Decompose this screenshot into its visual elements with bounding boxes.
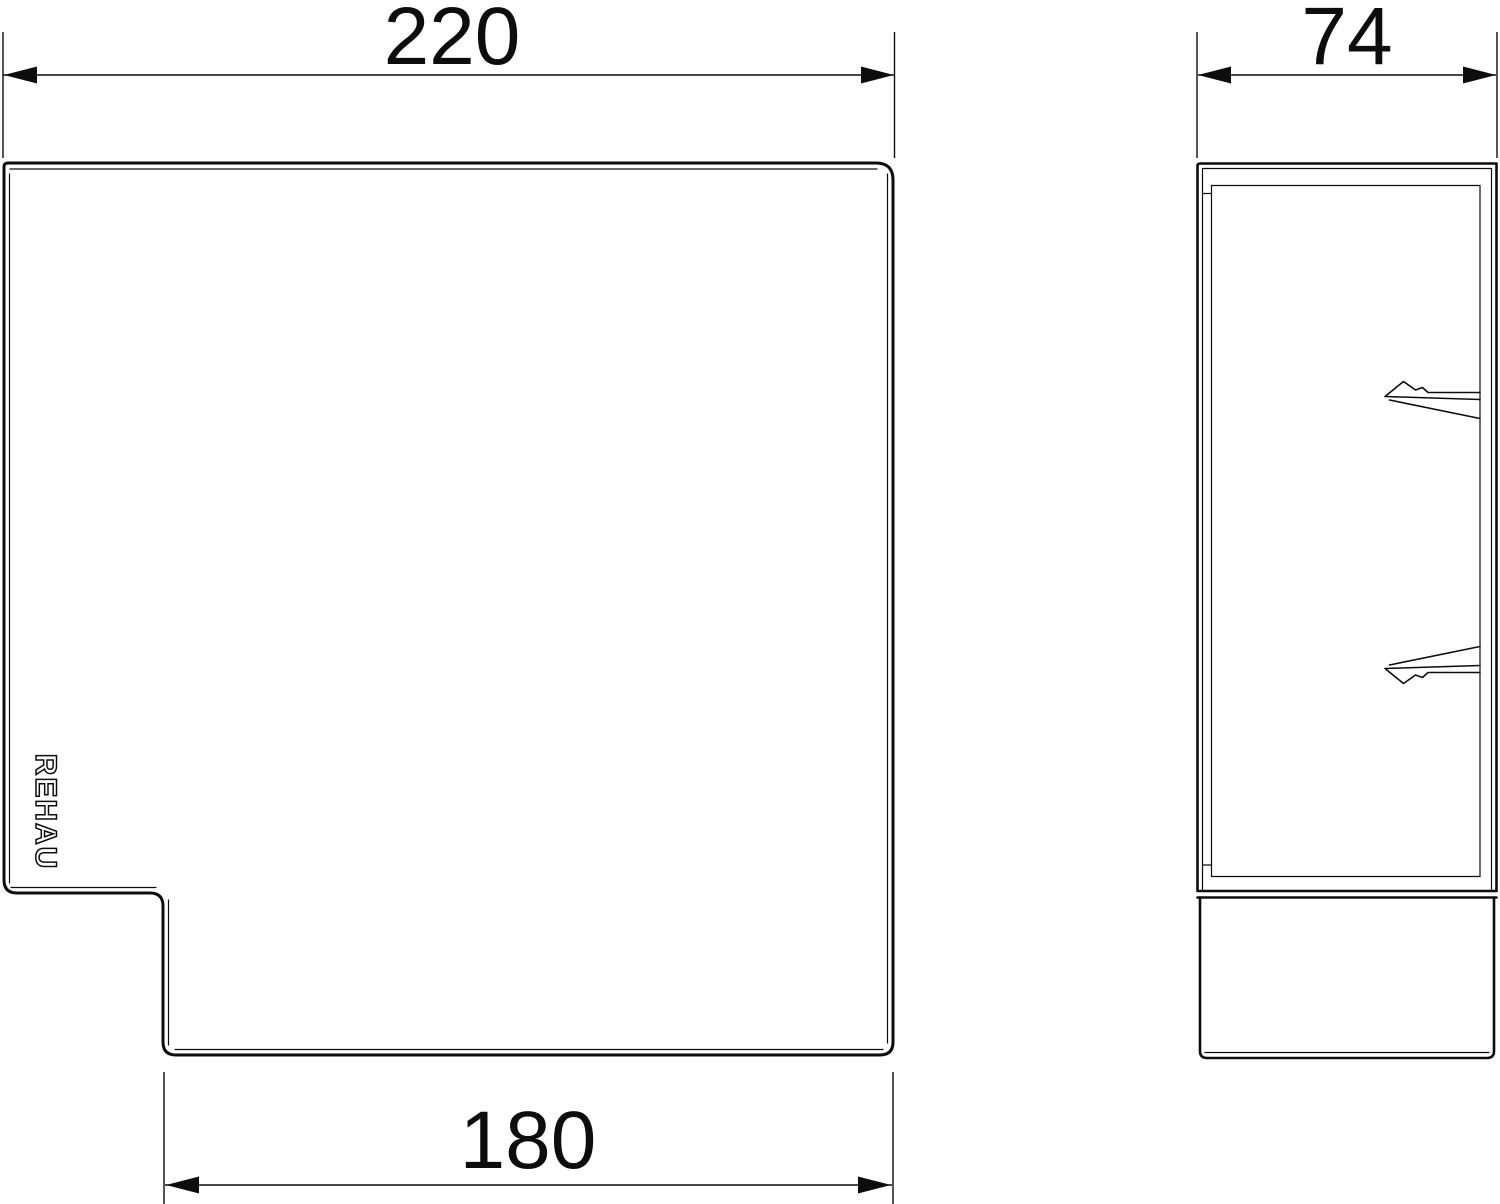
side-snap-clips <box>1385 382 1480 684</box>
technical-drawing-canvas: 220 REHAU 180 <box>0 0 1500 1204</box>
arrowhead-right-icon <box>858 1177 891 1194</box>
back-wall-top-hook <box>1203 186 1212 194</box>
upper-clip-diagonal <box>1390 400 1481 419</box>
outer-outline <box>4 163 893 1055</box>
arrowhead-right-icon <box>1463 67 1496 84</box>
lower-clip-diagonal <box>1390 647 1481 666</box>
flat-angle-technical-drawing: 220 REHAU 180 <box>0 0 1500 1204</box>
side-top-dimension: 74 <box>1197 0 1497 158</box>
dimension-value-220: 220 <box>384 0 521 82</box>
side-cover-section <box>1198 164 1497 898</box>
side-view-drawing: 74 <box>1197 0 1497 1058</box>
upper-clip-barb <box>1385 382 1480 400</box>
arrowhead-left-icon <box>4 67 37 84</box>
arrowhead-left-icon <box>1198 67 1231 84</box>
base-outline <box>1200 898 1494 1059</box>
rehau-logo: REHAU <box>29 754 62 871</box>
front-bottom-dimension: 180 <box>164 1072 893 1204</box>
front-part-outline <box>4 163 893 1055</box>
side-base-section <box>1200 898 1494 1059</box>
dimension-value-74: 74 <box>1301 0 1392 82</box>
arrowhead-left-icon <box>166 1177 199 1194</box>
lower-clip-barb <box>1385 666 1480 684</box>
dimension-value-180: 180 <box>460 1095 597 1186</box>
front-view-drawing: 220 REHAU 180 <box>3 0 895 1204</box>
side-back-wall <box>1203 186 1481 877</box>
back-wall-bottom-hook <box>1203 865 1212 877</box>
arrowhead-right-icon <box>861 67 894 84</box>
front-top-dimension: 220 <box>3 0 895 158</box>
cover-outer-rect <box>1198 164 1497 892</box>
